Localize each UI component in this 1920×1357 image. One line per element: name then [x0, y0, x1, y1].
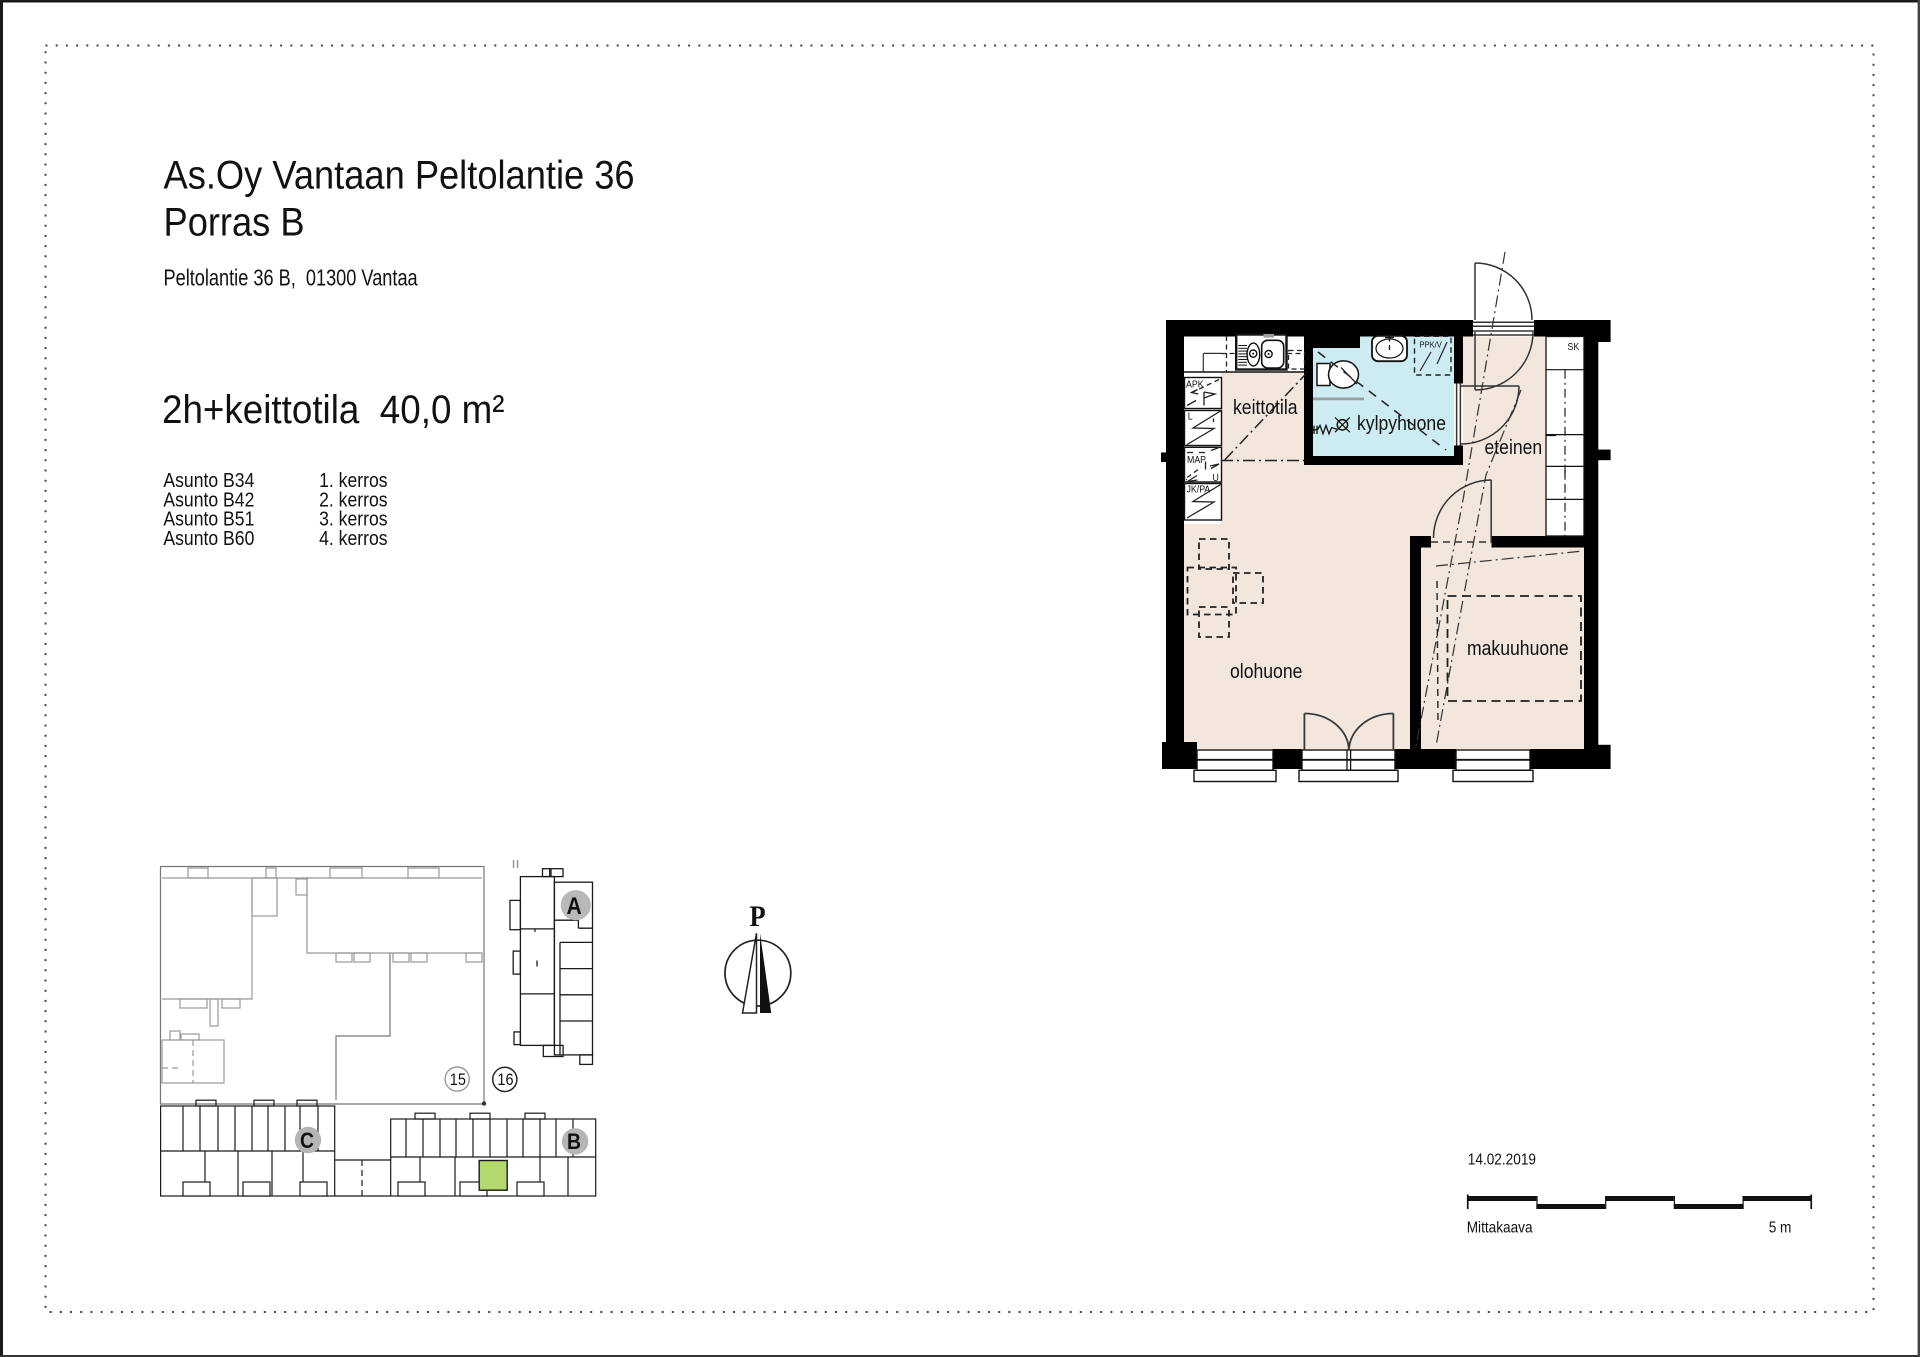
svg-text:keittotila: keittotila	[1233, 396, 1298, 418]
svg-text:P: P	[750, 901, 766, 934]
svg-text:MAP: MAP	[1187, 453, 1206, 465]
svg-text:makuuhuone: makuuhuone	[1467, 637, 1569, 659]
svg-text:APK: APK	[1186, 378, 1204, 390]
svg-text:As.Oy Vantaan Peltolantie 36: As.Oy Vantaan Peltolantie 36	[164, 153, 635, 198]
svg-text:4. kerros: 4. kerros	[319, 527, 387, 549]
svg-text:5 m: 5 m	[1769, 1220, 1792, 1237]
svg-text:PPK/V: PPK/V	[1420, 340, 1443, 350]
svg-text:eteinen: eteinen	[1485, 436, 1543, 458]
svg-text:C: C	[300, 1129, 314, 1153]
svg-text:Porras B: Porras B	[164, 200, 305, 245]
svg-text:15: 15	[450, 1071, 466, 1089]
svg-text:Mittakaava: Mittakaava	[1467, 1220, 1534, 1237]
svg-text:L: L	[1188, 410, 1193, 422]
svg-text:kylpyhuone: kylpyhuone	[1357, 412, 1446, 434]
svg-text:14.02.2019: 14.02.2019	[1468, 1152, 1536, 1169]
svg-text:16: 16	[497, 1071, 513, 1089]
svg-text:A: A	[567, 893, 582, 920]
svg-text:Peltolantie 36 B, 01300 Vanta: Peltolantie 36 B, 01300 Vantaa	[164, 266, 419, 292]
svg-text:Asunto B60: Asunto B60	[163, 527, 254, 549]
svg-text:olohuone: olohuone	[1230, 660, 1302, 682]
svg-text:B: B	[567, 1130, 581, 1154]
svg-text:SK: SK	[1568, 340, 1580, 352]
svg-text:JK/PA: JK/PA	[1187, 483, 1211, 495]
svg-text:U: U	[1213, 471, 1220, 483]
svg-text:2h+keittotila 40,0 m²: 2h+keittotila 40,0 m²	[162, 388, 505, 433]
